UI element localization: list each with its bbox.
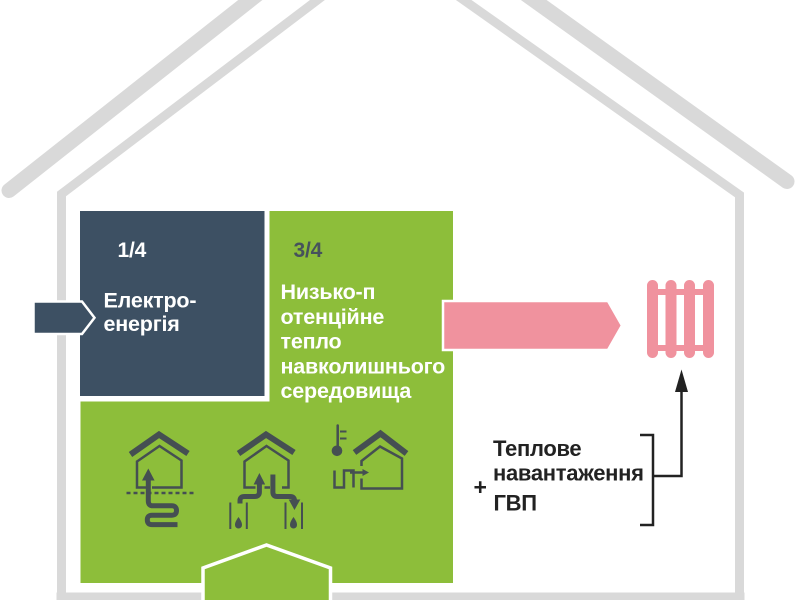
svg-text:Теплове: Теплове <box>493 436 581 461</box>
svg-text:навколишнього: навколишнього <box>281 354 446 378</box>
svg-text:Низько-п: Низько-п <box>281 280 376 304</box>
svg-text:навантаження: навантаження <box>493 461 644 486</box>
svg-text:енергія: енергія <box>104 312 180 336</box>
svg-text:3/4: 3/4 <box>294 239 323 262</box>
svg-text:Електро-: Електро- <box>104 289 197 313</box>
svg-text:1/4: 1/4 <box>118 239 147 262</box>
svg-text:середовища: середовища <box>281 379 413 403</box>
svg-text:ГВП: ГВП <box>494 490 537 515</box>
svg-text:отенційне: отенційне <box>281 305 385 329</box>
svg-text:+: + <box>474 474 487 500</box>
svg-text:тепло: тепло <box>281 330 342 354</box>
